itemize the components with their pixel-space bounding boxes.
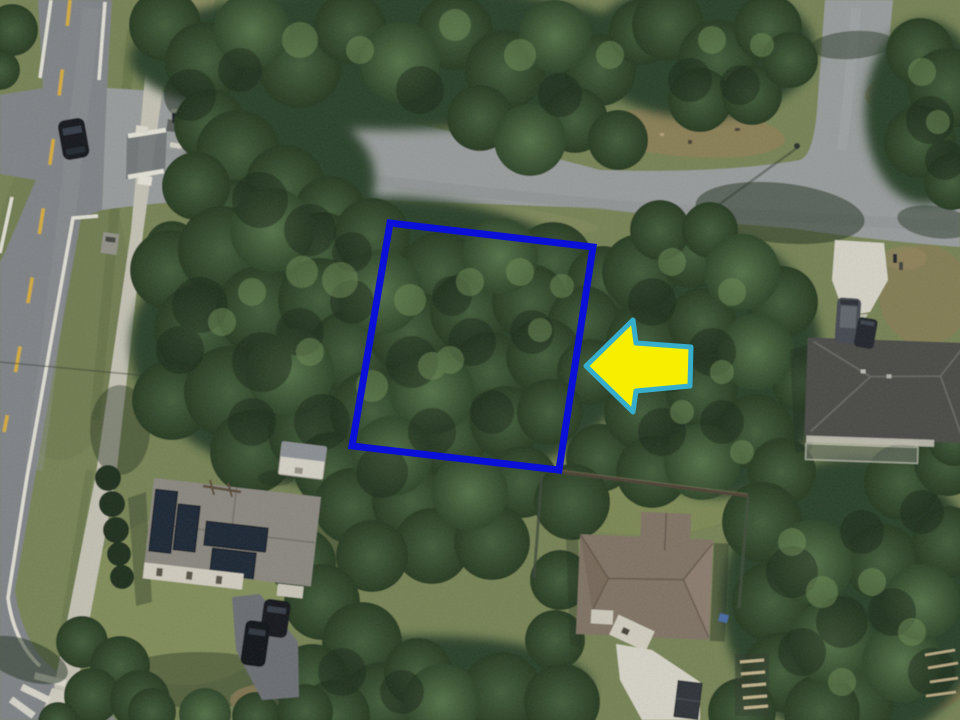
photo-grain-light [0,0,960,720]
aerial-map[interactable] [0,0,960,720]
satellite-photo [0,0,960,720]
